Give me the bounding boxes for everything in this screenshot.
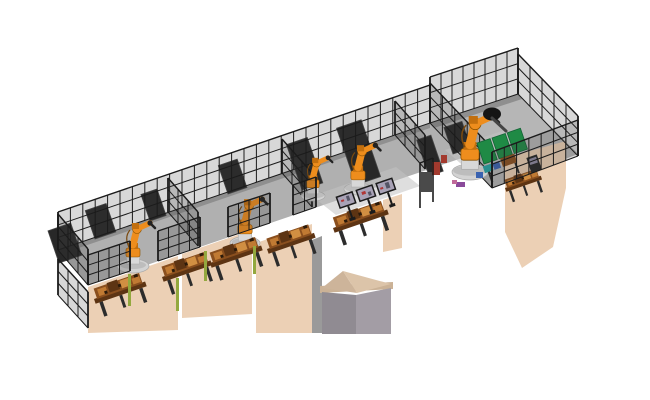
pyramid-pedestal bbox=[320, 271, 393, 334]
viewport-3d bbox=[0, 0, 650, 400]
assembly-line-render bbox=[0, 0, 650, 400]
